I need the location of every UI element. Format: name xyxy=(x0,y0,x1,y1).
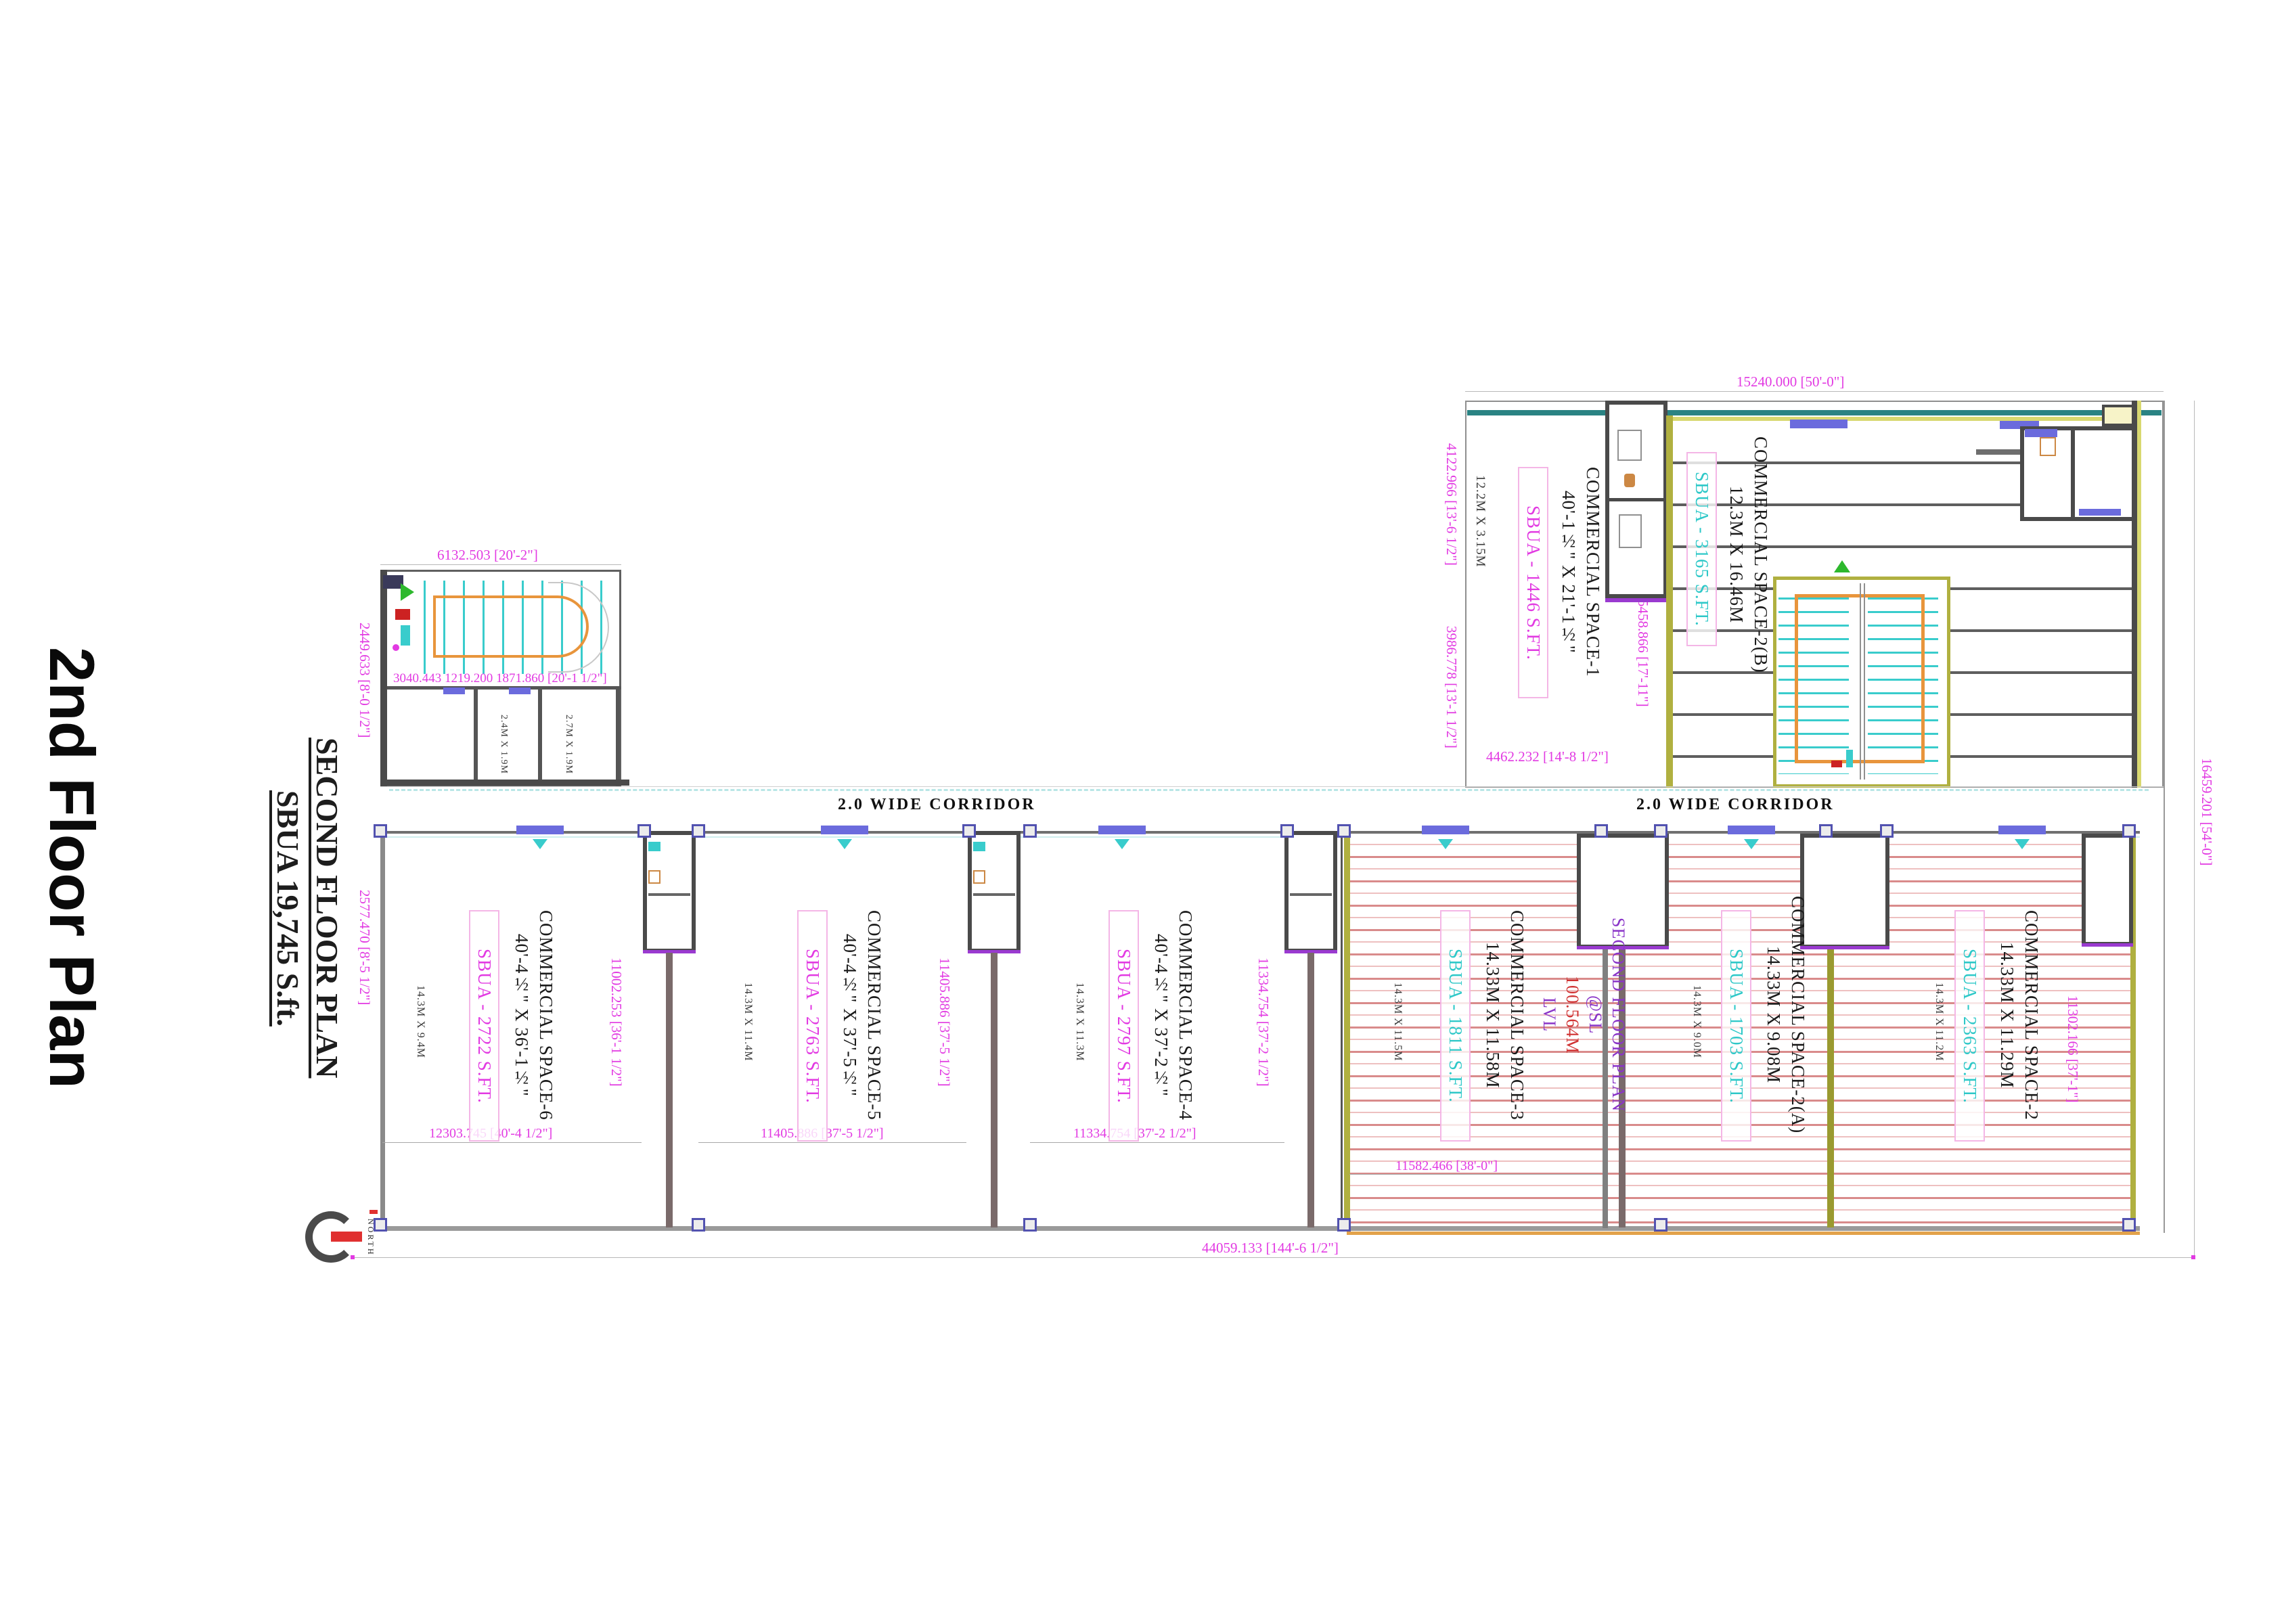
dim-upper-right: 16459.201 [54'-0"] xyxy=(2198,710,2215,913)
column-marker xyxy=(1023,1218,1037,1232)
column-marker xyxy=(637,824,651,838)
dim-space1-bottom: 4462.232 [14'-8 1/2"] xyxy=(1482,748,1613,765)
upper-right-wall xyxy=(2132,401,2137,788)
toilet-block xyxy=(1284,831,1337,953)
dim-tick xyxy=(2191,1255,2195,1259)
north-tick-icon xyxy=(370,1210,378,1214)
space-5-size-m: 14.3M X 11.4M xyxy=(742,968,754,1076)
space-3-label: COMMERCIAL SPACE-3 14.33M X 11.58M xyxy=(1481,873,1529,1157)
space-5-sbua: SBUA - 2763 S.FT. xyxy=(797,910,828,1142)
threshold-line xyxy=(2082,943,2133,947)
dim-space2-depth: 11302.166 [37'-1"] xyxy=(2064,947,2081,1150)
dim-stair-left: 2449.633 [8'-0 1/2"] xyxy=(356,609,373,751)
dim-line xyxy=(698,1142,966,1143)
plan-subtitle: SECOND FLOOR PLAN SBUA 19,745 S.ft. xyxy=(268,705,346,1111)
wc-fixture-icon xyxy=(1617,430,1642,461)
space-2-sbua: SBUA - 2363 S.FT. xyxy=(1954,910,1985,1142)
door-icon xyxy=(1998,826,2046,834)
magenta-node-icon xyxy=(393,644,399,651)
space-3-size-m: 14.3M X 11.5M xyxy=(1391,968,1404,1076)
page-title: 2nd Floor Plan xyxy=(35,637,108,1098)
up-arrow-icon xyxy=(1834,560,1850,572)
riser-marker-icon xyxy=(1846,750,1853,767)
space-1-name: COMMERCIAL SPACE-1 xyxy=(1581,430,1605,714)
teal-band xyxy=(1467,410,2162,415)
partition-wall xyxy=(1307,953,1314,1227)
space-6-sbua: SBUA - 2722 S.FT. xyxy=(469,910,499,1142)
level-note-line1: SECOND FLOOR PLAN xyxy=(1607,866,1630,1164)
space-4-size: 40'-4½" X 37'-2½" xyxy=(1149,873,1173,1157)
column-marker xyxy=(2122,824,2136,838)
lift-1-size: 2.4M X 1.9M xyxy=(498,709,509,780)
lift-2-size: 2.7M X 1.9M xyxy=(563,709,574,780)
level-note-value: 100.564M xyxy=(1561,866,1584,1164)
corridor-label-west: 2.0 WIDE CORRIDOR xyxy=(838,796,1036,814)
column-marker xyxy=(1337,1218,1351,1232)
space-4-label: COMMERCIAL SPACE-4 40'-4½" X 37'-2½" xyxy=(1149,873,1198,1157)
column-marker xyxy=(374,824,387,838)
space-2b-label: COMMERCIAL SPACE-2(B) 12.3M X 16.46M xyxy=(1724,426,1773,683)
column-marker xyxy=(1654,824,1667,838)
stair-top-dim-line xyxy=(380,564,621,565)
space-2a-label: COMMERCIAL SPACE-2(A) 14.33M X 9.08M xyxy=(1762,873,1810,1157)
north-label: NORTH xyxy=(365,1215,376,1260)
wc-fixture-icon xyxy=(973,870,985,884)
partition-wall xyxy=(666,953,673,1227)
space-2-size-m: 14.3M X 11.2M xyxy=(1933,968,1945,1076)
right-dim-line xyxy=(2194,401,2195,1257)
space-2-size: 14.33M X 11.29M xyxy=(1995,873,2019,1157)
column-marker xyxy=(1337,824,1351,838)
door-swing-icon xyxy=(837,839,852,849)
column-marker xyxy=(1594,824,1608,838)
band-bottom-orange xyxy=(1347,1232,2140,1235)
basin-icon xyxy=(1624,474,1635,487)
column-marker xyxy=(1654,1218,1667,1232)
up-arrow-icon xyxy=(401,583,414,601)
stair-divider xyxy=(1864,583,1865,780)
door-swing-icon xyxy=(533,839,547,849)
toilet-divider xyxy=(2071,426,2075,521)
sink-fixture-icon xyxy=(648,842,660,851)
dim-upper-top: 15240.000 [50'-0"] xyxy=(1732,374,1848,390)
subtitle-line-1: SECOND FLOOR PLAN xyxy=(307,705,346,1111)
stair-block-left-wall xyxy=(380,570,387,786)
space-2b-size: 12.3M X 16.46M xyxy=(1724,426,1749,683)
dim-stair-mid: 3040.443 1219.200 1871.860 [20'-1 1/2"] xyxy=(389,671,626,686)
toilet-block-ne xyxy=(2020,426,2136,521)
space-5-name: COMMERCIAL SPACE-5 xyxy=(862,873,887,1157)
level-note: SECOND FLOOR PLAN @SL 100.564M LVL xyxy=(1538,866,1630,1164)
band-bottom-wall xyxy=(380,1226,2140,1231)
space-4-name: COMMERCIAL SPACE-4 xyxy=(1173,873,1198,1157)
toilet-block xyxy=(1800,834,1889,949)
yellow-band xyxy=(1666,417,2137,421)
dim-upper-left-b: 3986.778 [13'-1 1/2"] xyxy=(1443,575,1460,798)
space-6-size-m: 14.3M X 9.4M xyxy=(414,968,426,1076)
column-marker xyxy=(962,824,976,838)
riser-marker-icon xyxy=(401,625,410,646)
space-4-sbua: SBUA - 2797 S.FT. xyxy=(1109,910,1139,1142)
band-left-wall xyxy=(380,831,385,1230)
space-3-sbua: SBUA - 1811 S.FT. xyxy=(1440,910,1471,1142)
space-4-size-m: 14.3M X 11.3M xyxy=(1073,968,1085,1076)
duct-box xyxy=(2102,405,2136,426)
column-marker xyxy=(374,1218,387,1232)
stair-block-bottom-wall xyxy=(380,780,629,786)
threshold-line xyxy=(1800,946,1889,949)
sink-fixture-icon xyxy=(1619,514,1642,548)
corridor-dashed-line xyxy=(389,789,2149,791)
dim-band-left: 2577.470 [8'-5 1/2"] xyxy=(356,846,373,1049)
column-marker xyxy=(1023,824,1037,838)
corridor-top-line xyxy=(380,786,2164,787)
dim-space3-width: 11582.466 [38'-0"] xyxy=(1391,1158,1502,1174)
door-icon xyxy=(509,687,531,694)
olive-wall xyxy=(1827,949,1834,1227)
door-swing-icon xyxy=(1438,839,1453,849)
door-swing-icon xyxy=(1744,839,1759,849)
column-marker xyxy=(1880,824,1894,838)
sink-fixture-icon xyxy=(973,842,985,851)
entry-marker-icon xyxy=(395,609,410,620)
door-swing-icon xyxy=(1115,839,1129,849)
upper-left-size-label: 12.2M X 3.15M xyxy=(1473,447,1487,595)
toilet-block xyxy=(2082,834,2133,946)
column-marker xyxy=(692,824,705,838)
floor-plan-sheet: 2nd Floor Plan SECOND FLOOR PLAN SBUA 19… xyxy=(0,0,2284,1624)
space-5-label: COMMERCIAL SPACE-5 40'-4½" X 37'-5½" xyxy=(838,873,887,1157)
door-icon xyxy=(821,826,868,834)
wc-fixture-icon xyxy=(648,870,660,884)
space-1-size: 40'-1½" X 21'-1½" xyxy=(1557,430,1581,714)
threshold-line xyxy=(1605,598,1672,602)
building-right-edge xyxy=(2164,401,2165,1233)
dim-wallA: 11002.253 [36'-1 1/2"] xyxy=(608,913,625,1130)
upper-top-dim-line xyxy=(1465,391,2164,392)
upper-right-yellow-wall xyxy=(2137,401,2141,788)
dim-tick xyxy=(351,1255,355,1259)
door-icon xyxy=(2025,429,2057,437)
space-2a-size: 14.33M X 9.08M xyxy=(1762,873,1786,1157)
olive-wall xyxy=(1344,834,1350,1228)
dim-bottom-total: 44059.133 [144'-6 1/2"] xyxy=(1198,1240,1343,1257)
north-needle-icon xyxy=(331,1232,362,1242)
space-5-size: 40'-4½" X 37'-5½" xyxy=(838,873,862,1157)
stair-divider xyxy=(1860,583,1861,780)
door-icon xyxy=(1098,826,1146,834)
column-marker xyxy=(1280,824,1294,838)
space-3-name: COMMERCIAL SPACE-3 xyxy=(1505,873,1529,1157)
entry-marker-icon xyxy=(1831,761,1842,767)
partition-wall xyxy=(991,953,998,1227)
dim-stair-top: 6132.503 [20'-2"] xyxy=(433,547,542,564)
level-note-suffix: LVL xyxy=(1538,866,1561,1164)
space-2-label: COMMERCIAL SPACE-2 14.33M X 11.29M xyxy=(1995,873,2044,1157)
space-2b-name: COMMERCIAL SPACE-2(B) xyxy=(1749,426,1773,683)
space-1-label: COMMERCIAL SPACE-1 40'-1½" X 21'-1½" xyxy=(1557,430,1605,714)
level-note-prefix: @SL xyxy=(1584,866,1607,1164)
dim-wallB: 11405.886 [37'-5 1/2"] xyxy=(936,913,953,1130)
space-6-label: COMMERCIAL SPACE-6 40'-4½" X 36'-1½" xyxy=(510,873,558,1157)
space-6-size: 40'-4½" X 36'-1½" xyxy=(510,873,534,1157)
door-icon xyxy=(443,687,465,694)
space-1-sbua: SBUA - 1446 S.FT. xyxy=(1518,467,1548,698)
door-swing-icon xyxy=(2015,839,2030,849)
corridor-label-east: 2.0 WIDE CORRIDOR xyxy=(1636,796,1835,814)
space-2b-sbua: SBUA - 3165 S.FT. xyxy=(1686,452,1717,646)
olive-wall xyxy=(1341,834,1343,1228)
column-marker xyxy=(692,1218,705,1232)
space-3-size: 14.33M X 11.58M xyxy=(1481,873,1505,1157)
door-icon xyxy=(516,826,564,834)
bottom-dim-line xyxy=(352,1257,2194,1258)
column-marker xyxy=(2122,1218,2136,1232)
space-2-name: COMMERCIAL SPACE-2 xyxy=(2019,873,2044,1157)
door-icon xyxy=(1422,826,1469,834)
door-icon xyxy=(1728,826,1775,834)
lift-wall xyxy=(616,686,620,786)
space-2a-name: COMMERCIAL SPACE-2(A) xyxy=(1786,873,1810,1157)
level-note-line2: @SL 100.564M LVL xyxy=(1538,866,1607,1164)
space-2a-sbua: SBUA - 1703 S.FT. xyxy=(1721,910,1751,1142)
space-2a-size-m: 14.3M X 9.0M xyxy=(1690,968,1703,1076)
wc-fixture-icon xyxy=(2040,437,2056,456)
column-marker xyxy=(1819,824,1833,838)
olive-wall xyxy=(1666,415,1673,788)
lift-wall xyxy=(474,686,478,785)
dim-line xyxy=(1349,1174,1600,1175)
stair-block-mid-wall xyxy=(387,686,621,690)
dim-wallC: 11334.754 [37'-2 1/2"] xyxy=(1255,913,1272,1130)
door-icon xyxy=(2079,509,2121,516)
lift-wall xyxy=(538,686,542,785)
space-6-name: COMMERCIAL SPACE-6 xyxy=(534,873,558,1157)
subtitle-line-2: SBUA 19,745 S.ft. xyxy=(268,705,307,1111)
